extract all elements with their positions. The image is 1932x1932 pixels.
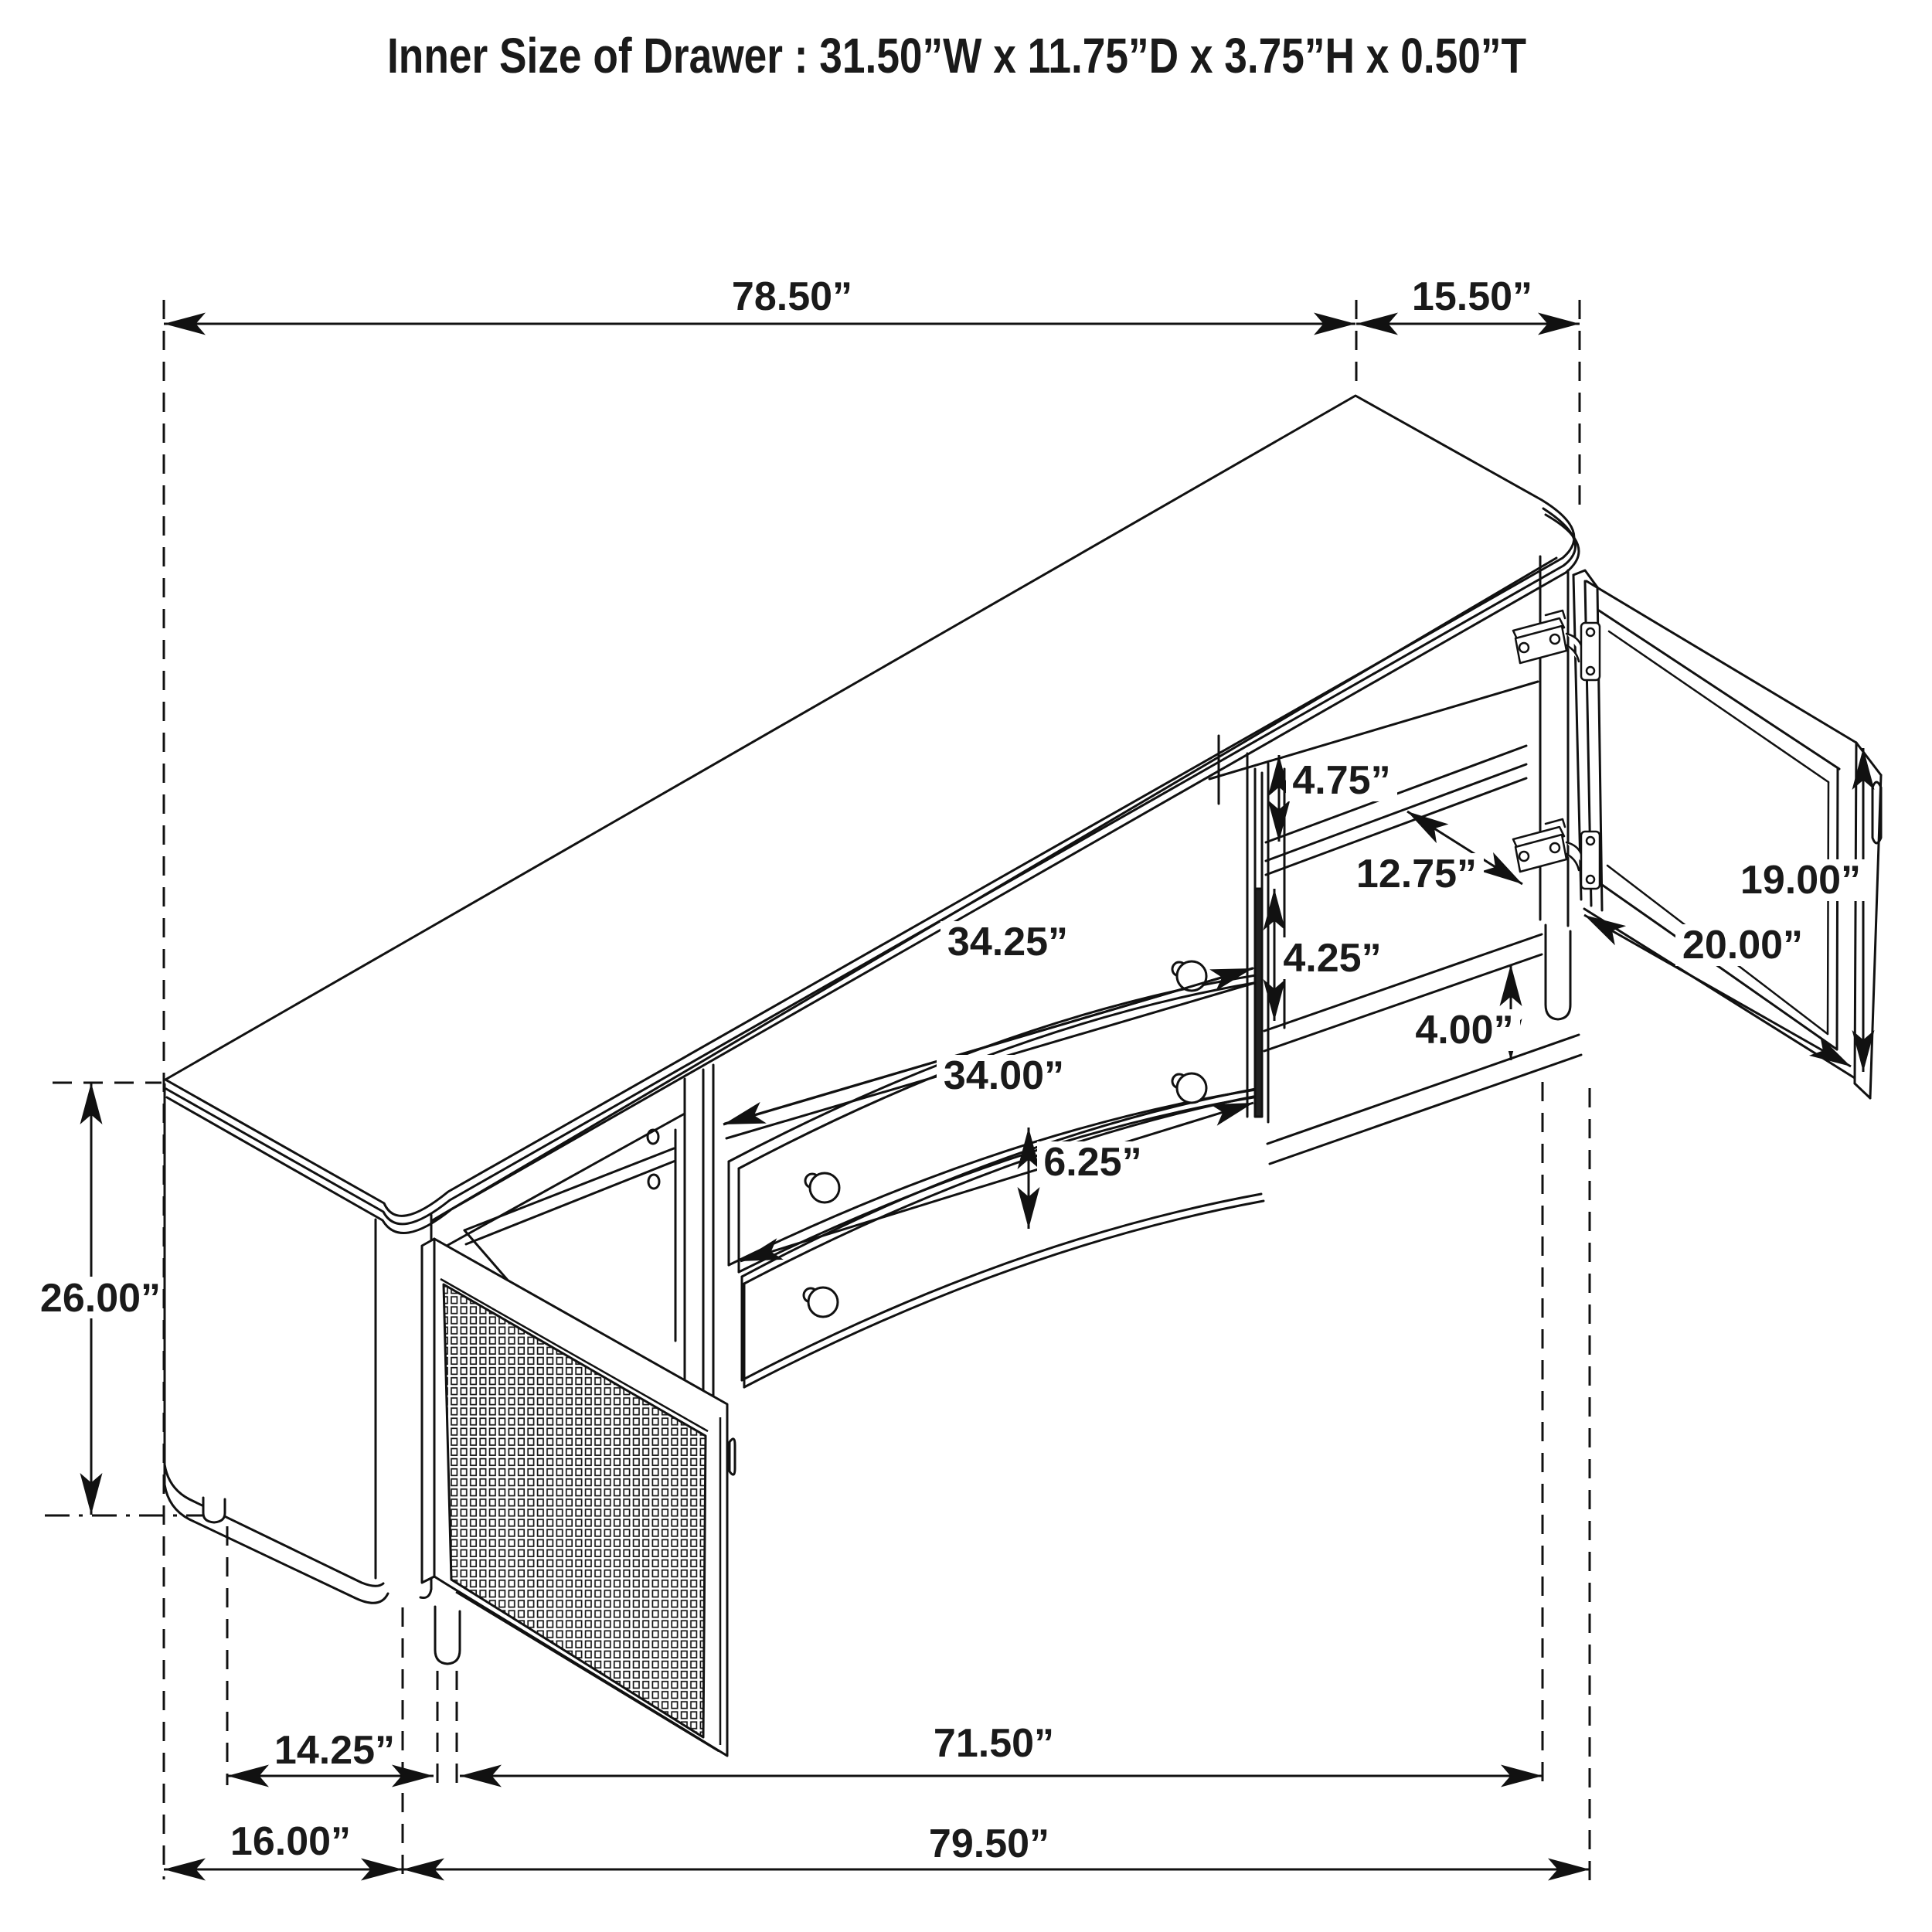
svg-text:6.25”: 6.25” <box>1043 1140 1141 1185</box>
svg-text:12.75”: 12.75” <box>1356 852 1477 896</box>
svg-text:78.50”: 78.50” <box>732 274 852 319</box>
svg-text:34.25”: 34.25” <box>947 920 1068 964</box>
svg-text:79.50”: 79.50” <box>929 1821 1049 1866</box>
svg-text:4.25”: 4.25” <box>1283 936 1381 981</box>
svg-text:20.00”: 20.00” <box>1682 923 1803 968</box>
svg-text:71.50”: 71.50” <box>934 1721 1054 1766</box>
svg-text:4.75”: 4.75” <box>1292 758 1390 803</box>
svg-text:14.25”: 14.25” <box>274 1728 395 1773</box>
svg-text:34.00”: 34.00” <box>944 1053 1064 1098</box>
svg-text:15.50”: 15.50” <box>1412 274 1532 319</box>
svg-text:26.00”: 26.00” <box>40 1276 161 1321</box>
svg-text:16.00”: 16.00” <box>230 1819 351 1864</box>
svg-text:4.00”: 4.00” <box>1415 1008 1513 1053</box>
svg-text:Inner Size of Drawer : 31.50”W: Inner Size of Drawer : 31.50”W x 11.75”D… <box>387 28 1526 83</box>
svg-text:19.00”: 19.00” <box>1740 858 1861 903</box>
